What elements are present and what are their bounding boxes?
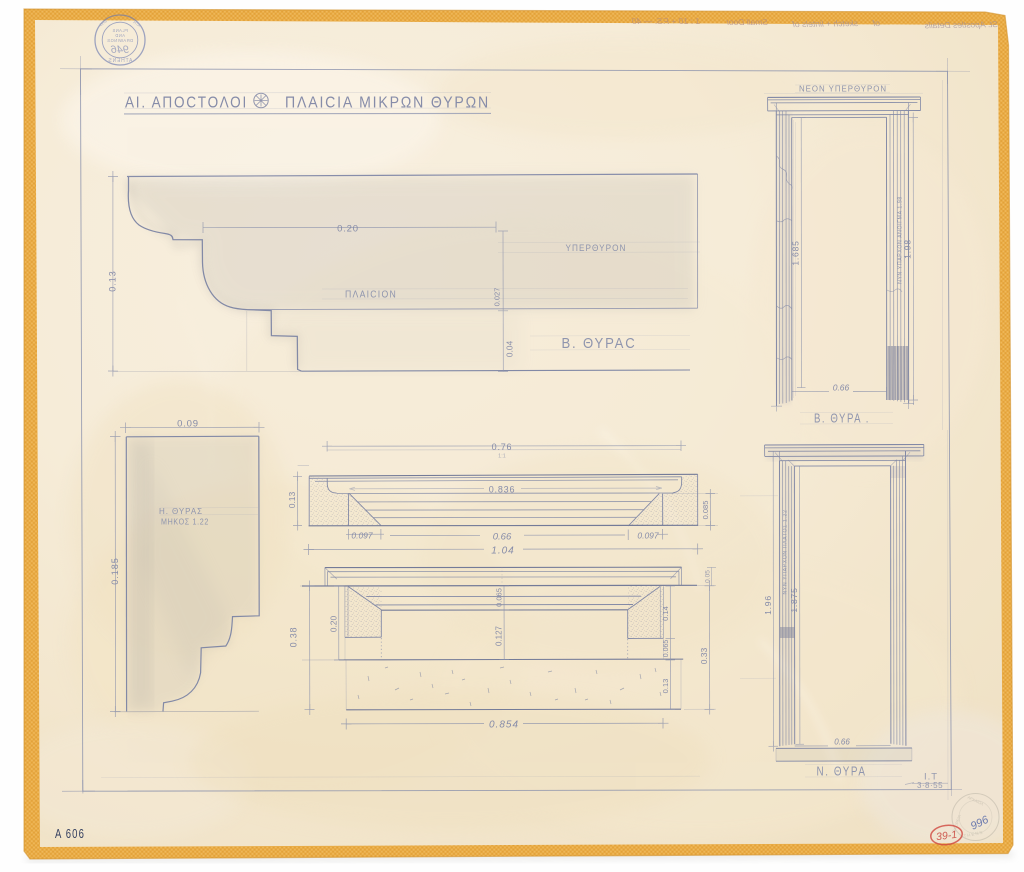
- svg-text:0.13: 0.13: [287, 491, 297, 508]
- svg-text:Β. ΘΥΡΑ .: Β. ΘΥΡΑ .: [814, 411, 870, 425]
- svg-text:0.66: 0.66: [833, 382, 850, 392]
- svg-text:ΝΥΝ ΥΠΑΡΧΟΝ ΑΝΟΙΓΜΑ 1.98: ΝΥΝ ΥΠΑΡΧΟΝ ΑΝΟΙΓΜΑ 1.98: [898, 196, 904, 284]
- svg-text:0.04: 0.04: [505, 340, 515, 357]
- svg-text:0.76: 0.76: [492, 442, 513, 452]
- svg-text:ΑΙ. ΑΠΟCΤΟΛΟΙ: ΑΙ. ΑΠΟCΤΟΛΟΙ: [125, 95, 248, 112]
- svg-text:ATHENS: ATHENS: [108, 58, 133, 64]
- svg-text:St. Apostles Details: St. Apostles Details: [924, 19, 998, 30]
- svg-text:DRAWINGS: DRAWINGS: [107, 38, 133, 43]
- svg-text:0.065: 0.065: [495, 588, 504, 607]
- svg-text:0.09: 0.09: [177, 419, 199, 430]
- svg-text:0.13: 0.13: [108, 270, 118, 292]
- svg-text:946: 946: [110, 44, 129, 56]
- svg-text:0.20: 0.20: [328, 615, 338, 632]
- svg-text:0.38: 0.38: [289, 627, 299, 648]
- svg-text:ΥΠΕΡΘΥΡΟΝ: ΥΠΕΡΘΥΡΟΝ: [566, 243, 627, 254]
- svg-text:1.04: 1.04: [491, 546, 514, 557]
- svg-text:ΜΗΚΟΣ 1.22: ΜΗΚΟΣ 1.22: [161, 517, 209, 527]
- svg-text:0.13: 0.13: [661, 679, 670, 694]
- svg-text:0.20: 0.20: [337, 224, 359, 235]
- svg-text:A 606: A 606: [55, 827, 85, 841]
- svg-text:0.14: 0.14: [661, 606, 670, 621]
- svg-text:0.085: 0.085: [701, 501, 710, 520]
- svg-text:1 : 10 + F.S. — 40: 1 : 10 + F.S. — 40: [632, 16, 700, 26]
- svg-text:0.185: 0.185: [110, 557, 120, 585]
- svg-text:1.685: 1.685: [791, 240, 801, 265]
- svg-text:sketch + lintels of: sketch + lintels of: [791, 18, 858, 29]
- svg-text:ΠΛΑΙCΙΟΝ: ΠΛΑΙCΙΟΝ: [345, 289, 397, 301]
- svg-text:1.98: 1.98: [903, 239, 913, 259]
- svg-text:1:1: 1:1: [498, 454, 506, 460]
- svg-text:1.96: 1.96: [763, 595, 773, 615]
- svg-text:Ν. ΘΥΡΑ: Ν. ΘΥΡΑ: [817, 764, 867, 778]
- svg-text:0.66: 0.66: [493, 532, 512, 543]
- svg-text:3·8·55: 3·8·55: [917, 781, 943, 790]
- svg-text:0.097: 0.097: [637, 530, 659, 540]
- svg-text:39-1: 39-1: [935, 829, 957, 843]
- svg-text:0.097: 0.097: [351, 531, 373, 541]
- svg-text:0.836: 0.836: [489, 485, 516, 495]
- svg-text:1.875: 1.875: [789, 587, 799, 612]
- svg-text:0.854: 0.854: [489, 720, 519, 731]
- svg-text:ΝΕΟΝ ΥΠΕΡΘΥΡΟΝ: ΝΕΟΝ ΥΠΕΡΘΥΡΟΝ: [799, 84, 887, 93]
- svg-text:0.33: 0.33: [699, 647, 709, 664]
- svg-text:Η. ΘΥΡΑΣ: Η. ΘΥΡΑΣ: [159, 506, 203, 516]
- svg-text:Small Door: Small Door: [725, 17, 768, 27]
- svg-text:ΝΥΝ ΥΠΑΡΧΟΝ ΠΛΑΤΟΣ 1.22: ΝΥΝ ΥΠΑΡΧΟΝ ΠΛΑΤΟΣ 1.22: [782, 509, 788, 594]
- svg-text:0.127: 0.127: [495, 625, 504, 646]
- svg-text:0.05: 0.05: [705, 570, 712, 583]
- svg-text:0.065: 0.065: [663, 640, 670, 658]
- svg-text:0.66: 0.66: [834, 738, 850, 747]
- svg-text:0.027: 0.027: [493, 288, 502, 307]
- svg-text:ΠΛΑΙCΙΑ ΜΙΚΡΩΝ ΘΥΡΩΝ: ΠΛΑΙCΙΑ ΜΙΚΡΩΝ ΘΥΡΩΝ: [285, 95, 490, 112]
- svg-text:Β. ΘΥΡΑC: Β. ΘΥΡΑC: [562, 336, 637, 352]
